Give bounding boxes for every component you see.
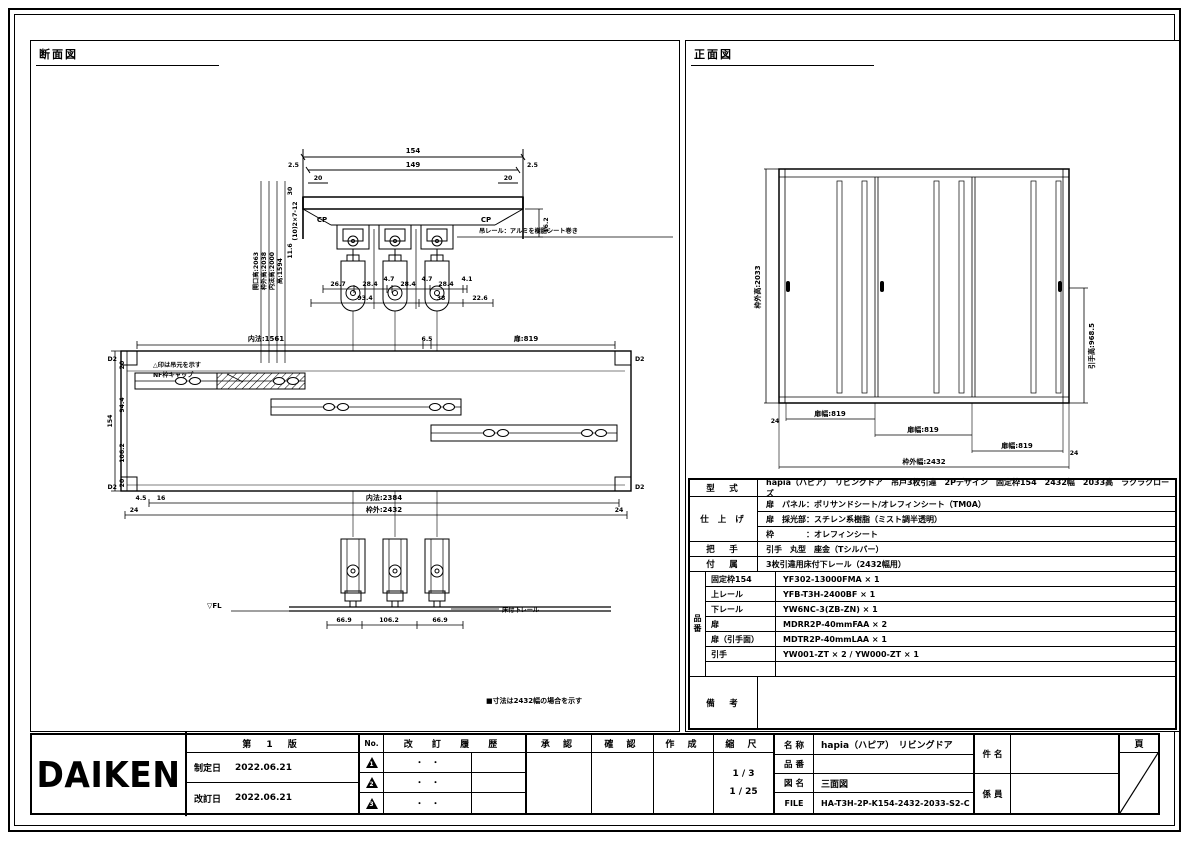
part-number: YF302-13000FMA × 1	[776, 572, 1175, 586]
part-name: 上レール	[706, 587, 776, 601]
revision-date-1: ・ ・	[384, 753, 472, 773]
dim-154-frame: 154	[107, 414, 114, 428]
spec-label-finish: 仕 上 げ	[690, 497, 758, 541]
dim-38: 38	[437, 295, 446, 302]
item-label: 品 番	[775, 755, 814, 774]
revision-desc-1	[472, 753, 527, 773]
part-name	[706, 662, 776, 676]
part-number: YFB-T3H-2400BF × 1	[776, 587, 1175, 601]
fl-level-label: ▽FL	[207, 602, 222, 610]
approve-header: 承 認	[527, 735, 592, 753]
dim-28_4c: 28.4	[438, 281, 454, 288]
hang-rail-callout: 吊レール：アルミを樹脂シート巻き	[479, 227, 578, 235]
dim-30: 30	[287, 186, 294, 195]
revision-desc-2	[472, 773, 527, 793]
plan-annotation-2: NF枠キャップ	[153, 371, 194, 379]
finish-row-panel: 扉 パネル：ポリサンドシート/オレフィンシート（TM0A）	[758, 497, 1175, 512]
dim-28_4a: 28.4	[362, 281, 378, 288]
dim-24-front-right: 24	[1070, 450, 1079, 457]
spec-label-remarks: 備 考	[690, 677, 758, 728]
subject-label: 件 名	[975, 735, 1011, 774]
part-name: 下レール	[706, 602, 776, 616]
cp-left-label: CP	[317, 216, 327, 224]
part-row	[706, 662, 1175, 676]
dim-4_7b: 4.7	[422, 276, 433, 283]
dim-4_7a: 4.7	[384, 276, 395, 283]
spec-value-model: hapia（ハピア） リビングドア 吊戸3枚引違 2Pデザイン 固定枠154 2…	[758, 480, 1175, 496]
section-view-panel: 断面図	[30, 40, 680, 732]
check-header: 確 認	[592, 735, 654, 753]
dim-20-top: 20	[119, 360, 126, 369]
edition-header: 第 1 版	[187, 735, 360, 753]
revision-history-header: 改 訂 履 歴	[384, 735, 527, 753]
revision-mark-1: 1	[360, 753, 384, 773]
corner-d2-br: D2	[635, 484, 644, 491]
create-header: 作 成	[654, 735, 714, 753]
title-block: DAIKEN 第 1 版 制定日 2022.06.21 改訂日 2022.06.…	[30, 733, 1160, 815]
part-number: MDRR2P-40mmFAA × 2	[776, 617, 1175, 631]
scale-value-1: 1 / 3	[732, 769, 754, 779]
create-stamp-cell	[654, 753, 714, 813]
revision-mark-3: 3	[360, 793, 384, 813]
dim-11_6: 11.6	[287, 243, 294, 258]
dim-66_9b: 66.9	[432, 617, 447, 624]
spec-row-accessory: 付 属 3枚引違用床付下レール（2432幅用）	[690, 557, 1175, 572]
dim-door-819-plan: 扉:819	[513, 334, 539, 343]
part-number	[776, 662, 1175, 676]
revision-date-2: ・ ・	[384, 773, 472, 793]
spec-row-remarks: 備 考	[690, 677, 1175, 728]
scale-header: 縮 尺	[714, 735, 775, 753]
file-value: HA-T3H-2P-K154-2432-2033-S2-C	[814, 793, 975, 813]
part-name: 引手	[706, 647, 776, 661]
page-header: 頁	[1120, 735, 1158, 753]
front-view-geometry	[764, 169, 1088, 469]
part-name: 扉	[706, 617, 776, 631]
revision-triangle-icon: 3	[366, 798, 378, 809]
sill-section-labels: ▽FL 床付下レール 66.9 106.2 66.9 ■寸法は2432幅の場合を…	[207, 602, 582, 705]
section-view-title: 断面図	[36, 45, 219, 66]
section-note: ■寸法は2432幅の場合を示す	[486, 696, 582, 705]
revision-desc-3	[472, 793, 527, 813]
dim-wakugai-2432: 枠外:2432	[366, 505, 402, 514]
file-label: FILE	[775, 793, 814, 813]
enacted-date-row: 制定日 2022.06.21	[187, 753, 360, 783]
drawing-name-label: 図 名	[775, 774, 814, 793]
dim-door2-819: 扉幅:819	[906, 425, 939, 434]
dim-door3-819: 扉幅:819	[1000, 441, 1033, 450]
dim-handle-height-968: 引手高:968.5	[1087, 323, 1096, 369]
dim-24-right: 24	[615, 507, 624, 514]
corner-d2-tr: D2	[635, 356, 644, 363]
dim-4_5: 4.5	[136, 495, 147, 502]
enacted-date-label: 制定日	[194, 761, 221, 774]
dim-uchinori-2384: 内法:2384	[366, 493, 402, 502]
spec-row-model: 型 式 hapia（ハピア） リビングドア 吊戸3枚引違 2Pデザイン 固定枠1…	[690, 480, 1175, 497]
dim-door1-819: 扉幅:819	[813, 409, 846, 418]
cp-right-label: CP	[481, 216, 491, 224]
spec-value-remarks	[758, 677, 1175, 728]
part-number: MDTR2P-40mmLAA × 1	[776, 632, 1175, 646]
dim-opening-height: 開口高:2063	[252, 252, 260, 290]
scale-value-2: 1 / 25	[729, 787, 757, 797]
revision-no-header: No.	[360, 735, 384, 753]
dim-uchinori-1561: 内法:1561	[248, 334, 284, 343]
revised-date-row: 改訂日 2022.06.21	[187, 783, 360, 813]
spec-value-accessory: 3枚引違用床付下レール（2432幅用）	[758, 557, 1175, 571]
daiken-logo: DAIKEN	[32, 732, 187, 816]
dim-20-right: 20	[504, 175, 513, 182]
revised-date-value: 2022.06.21	[235, 793, 292, 803]
name-value: hapia（ハピア） リビングドア	[814, 735, 975, 755]
dim-94_4: 94.4	[119, 397, 126, 413]
part-name: 固定枠154	[706, 572, 776, 586]
plan-section-labels: D2 D2 D2 D2 内法:1561 6.5 扉:819 20 154 94.…	[107, 334, 644, 514]
dim-93_4: 93.4	[357, 295, 373, 302]
corner-d2-tl: D2	[108, 356, 117, 363]
dim-6_5: 6.5	[422, 336, 433, 343]
spec-label-partno: 品番	[690, 572, 706, 676]
front-view-title: 正面図	[691, 45, 874, 66]
dim-1594: 高:1594	[276, 257, 284, 284]
dim-2_5-left: 2.5	[288, 162, 299, 169]
floor-rail-callout: 床付下レール	[502, 606, 540, 614]
dim-clear-height: 内法高:2000	[268, 251, 276, 290]
finish-row-frame: 枠 ：オレフィンシート	[758, 527, 1175, 541]
dim-22_6: 22.6	[472, 295, 487, 302]
dim-154: 154	[406, 147, 421, 155]
dim-106_2-sill: 106.2	[379, 617, 399, 624]
revision-date-3: ・ ・	[384, 793, 472, 813]
dim-4_1: 4.1	[462, 276, 473, 283]
part-row: 扉 MDRR2P-40mmFAA × 2	[706, 617, 1175, 632]
dim-149: 149	[406, 161, 421, 169]
check-stamp-cell	[592, 753, 654, 813]
staff-value	[1011, 774, 1120, 813]
dim-frame-height: 枠外高:2038	[260, 252, 268, 291]
item-value	[814, 755, 975, 774]
part-row: 固定枠154 YF302-13000FMA × 1	[706, 572, 1175, 587]
spec-row-handle: 把 手 引手 丸型 座金（Tシルバー）	[690, 542, 1175, 557]
spec-label-accessory: 付 属	[690, 557, 758, 571]
dim-16: 16	[157, 495, 166, 502]
enacted-date-value: 2022.06.21	[235, 763, 292, 773]
front-view-labels: 枠外高:2033 引手高:968.5 扉幅:819 扉幅:819 扉幅:819 …	[753, 265, 1096, 466]
part-row: 引手 YW001-ZT × 2 / YW000-ZT × 1	[706, 647, 1175, 662]
revision-triangle-icon: 2	[366, 777, 378, 788]
dim-note-small: (10)2×7-12	[292, 201, 299, 240]
revision-triangle-icon: 1	[366, 757, 378, 768]
approve-stamp-cell	[527, 753, 592, 813]
scale-values: 1 / 3 1 / 25	[714, 753, 775, 813]
door-handles	[786, 281, 1062, 292]
front-view-drawing: 枠外高:2033 引手高:968.5 扉幅:819 扉幅:819 扉幅:819 …	[686, 41, 1178, 477]
revision-mark-2: 2	[360, 773, 384, 793]
spec-table: 型 式 hapia（ハピア） リビングドア 吊戸3枚引違 2Pデザイン 固定枠1…	[688, 478, 1177, 730]
drawing-name-value: 三面図	[814, 774, 975, 793]
finish-row-light: 扉 採光部：スチレン系樹脂（ミスト調半透明）	[758, 512, 1175, 527]
page-diagonal	[1120, 753, 1158, 813]
dim-2_5-right: 2.5	[527, 162, 538, 169]
part-row: 下レール YW6NC-3(ZB-ZN) × 1	[706, 602, 1175, 617]
dim-24-left: 24	[130, 507, 139, 514]
spec-row-finish: 仕 上 げ 扉 パネル：ポリサンドシート/オレフィンシート（TM0A） 扉 採光…	[690, 497, 1175, 542]
staff-label: 係 員	[975, 774, 1011, 813]
dim-26_7: 26.7	[330, 281, 345, 288]
page-diagonal-cell	[1120, 753, 1158, 813]
spec-label-handle: 把 手	[690, 542, 758, 556]
revised-date-label: 改訂日	[194, 792, 221, 805]
part-row: 上レール YFB-T3H-2400BF × 1	[706, 587, 1175, 602]
section-view-drawing: 154 149 2.5 2.5 20 20 CP CP 16.2 吊レール：アル…	[31, 41, 678, 730]
name-label: 名 称	[775, 735, 814, 755]
sill-section-geometry	[231, 539, 611, 629]
corner-d2-bl: D2	[108, 484, 117, 491]
dim-66_9a: 66.9	[336, 617, 351, 624]
part-row: 扉（引手面） MDTR2P-40mmLAA × 1	[706, 632, 1175, 647]
dim-24-front-left: 24	[771, 418, 780, 425]
dim-20-left: 20	[314, 175, 323, 182]
spec-row-partnumbers: 品番 固定枠154 YF302-13000FMA × 1 上レール YFB-T3…	[690, 572, 1175, 677]
part-number: YW6NC-3(ZB-ZN) × 1	[776, 602, 1175, 616]
dim-28_4b: 28.4	[400, 281, 416, 288]
spec-value-handle: 引手 丸型 座金（Tシルバー）	[758, 542, 1175, 556]
subject-value	[1011, 735, 1120, 774]
part-number: YW001-ZT × 2 / YW000-ZT × 1	[776, 647, 1175, 661]
head-section-geometry	[261, 149, 673, 537]
plan-annotation-1: △印は吊元を示す	[153, 361, 201, 369]
dim-20-bottom: 20	[119, 478, 126, 487]
dim-total-width-2432: 枠外幅:2432	[902, 457, 945, 466]
part-name: 扉（引手面）	[706, 632, 776, 646]
dim-106_2-plan: 106.2	[119, 443, 126, 463]
dim-frame-height-2033: 枠外高:2033	[753, 265, 762, 308]
spec-label-model: 型 式	[690, 480, 758, 496]
